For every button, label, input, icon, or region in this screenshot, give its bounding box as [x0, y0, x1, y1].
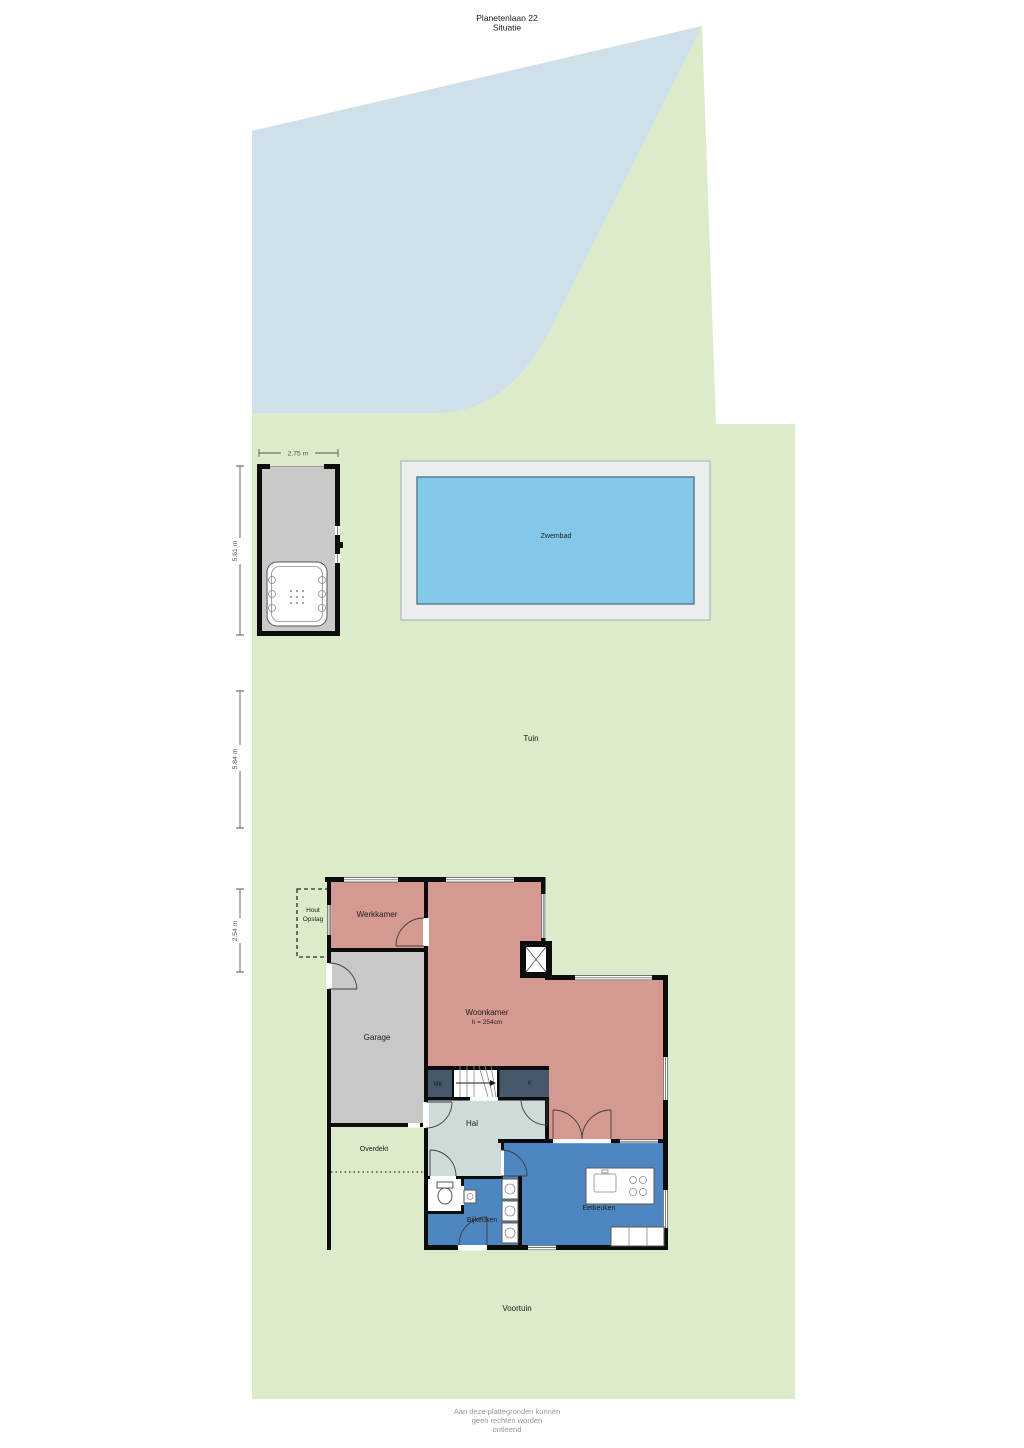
floorplan-canvas: Zwembad 2.75 m 5.61 m 5. — [0, 0, 1024, 1448]
label-woonkamer: Woonkamer — [466, 1008, 509, 1017]
footer-line3: ontleend — [493, 1425, 522, 1434]
shed — [257, 464, 343, 636]
label-tuin: Tuin — [523, 734, 538, 743]
kitchen-counter — [611, 1227, 664, 1246]
label-overdekt: Overdekt — [360, 1146, 388, 1153]
dim-shed-depth: 5.61 m — [232, 540, 239, 561]
label-bijkeuken: Bijkeuken — [467, 1217, 497, 1224]
label-eetkeuken: Eetkeuken — [582, 1205, 615, 1212]
plan-subtitle: Situatie — [493, 23, 522, 33]
laundry-appliances — [502, 1179, 518, 1243]
room-k — [498, 1066, 549, 1100]
washbasin-icon — [464, 1190, 476, 1203]
plan-title: Planetenlaan 22 — [476, 13, 538, 23]
footer-disclaimer: Aan deze plattegronden kunnen geen recht… — [454, 1407, 560, 1434]
footer-line1: Aan deze plattegronden kunnen — [454, 1407, 560, 1416]
label-werkkamer: Werkkamer — [357, 910, 398, 919]
label-mk: MK — [434, 1082, 443, 1088]
label-woonkamer-height: h = 254cm — [472, 1019, 503, 1026]
chimney — [526, 947, 546, 972]
swimming-pool: Zwembad — [401, 461, 710, 620]
label-hout: Hout — [306, 907, 320, 914]
label-k: K — [528, 1081, 532, 1087]
dim-garden-lower: 2.54 m — [232, 920, 239, 941]
dim-shed-width: 2.75 m — [288, 451, 309, 458]
label-zwembad: Zwembad — [541, 533, 572, 540]
label-opslag: Opslag — [303, 916, 324, 923]
hot-tub — [267, 562, 327, 626]
footer-line2: geen rechten worden — [472, 1416, 542, 1425]
kitchen-island — [586, 1168, 654, 1204]
pool-water — [417, 477, 694, 604]
label-hal: Hal — [466, 1119, 478, 1128]
toilet-icon — [437, 1182, 453, 1204]
label-voortuin: Voortuin — [502, 1304, 531, 1313]
label-garage: Garage — [364, 1033, 391, 1042]
situation-plan-page: Zwembad 2.75 m 5.61 m 5. — [0, 0, 1024, 1448]
dim-garden-upper: 5.84 m — [232, 748, 239, 769]
